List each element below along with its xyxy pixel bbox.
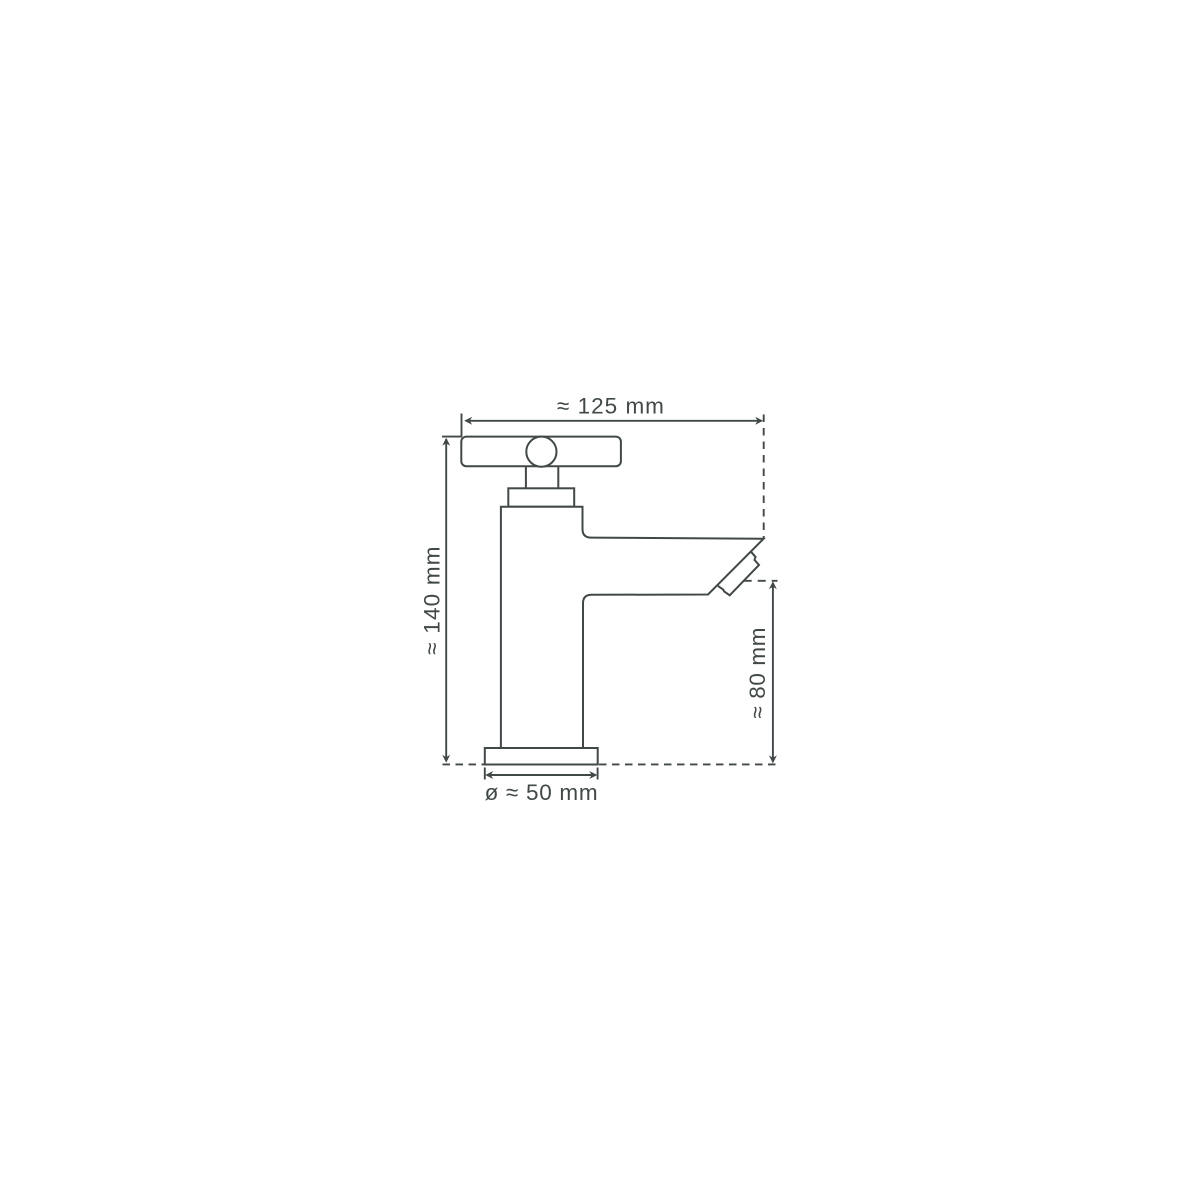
svg-text:≈ 140 mm: ≈ 140 mm	[420, 545, 445, 654]
svg-text:≈ 80 mm: ≈ 80 mm	[745, 627, 770, 719]
svg-text:≈ 125 mm: ≈ 125 mm	[557, 394, 665, 419]
svg-text:ø ≈ 50 mm: ø ≈ 50 mm	[485, 780, 599, 805]
